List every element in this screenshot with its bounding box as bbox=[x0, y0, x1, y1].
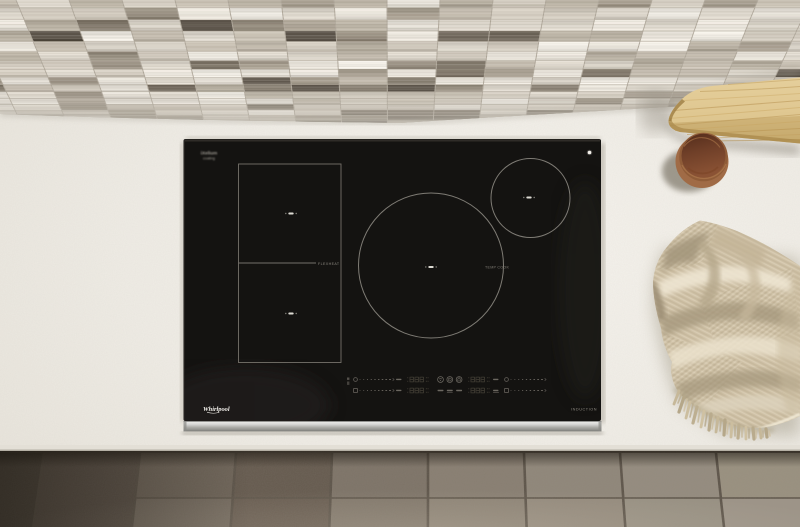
svg-text:FLEXHEAT: FLEXHEAT bbox=[318, 262, 340, 266]
svg-text:TEMP COOK: TEMP COOK bbox=[485, 266, 510, 270]
svg-text:INDUCTION: INDUCTION bbox=[571, 408, 597, 412]
svg-text:iXelium: iXelium bbox=[201, 151, 218, 156]
svg-text:Whirlpool: Whirlpool bbox=[203, 406, 230, 413]
svg-text:coating: coating bbox=[203, 157, 215, 161]
